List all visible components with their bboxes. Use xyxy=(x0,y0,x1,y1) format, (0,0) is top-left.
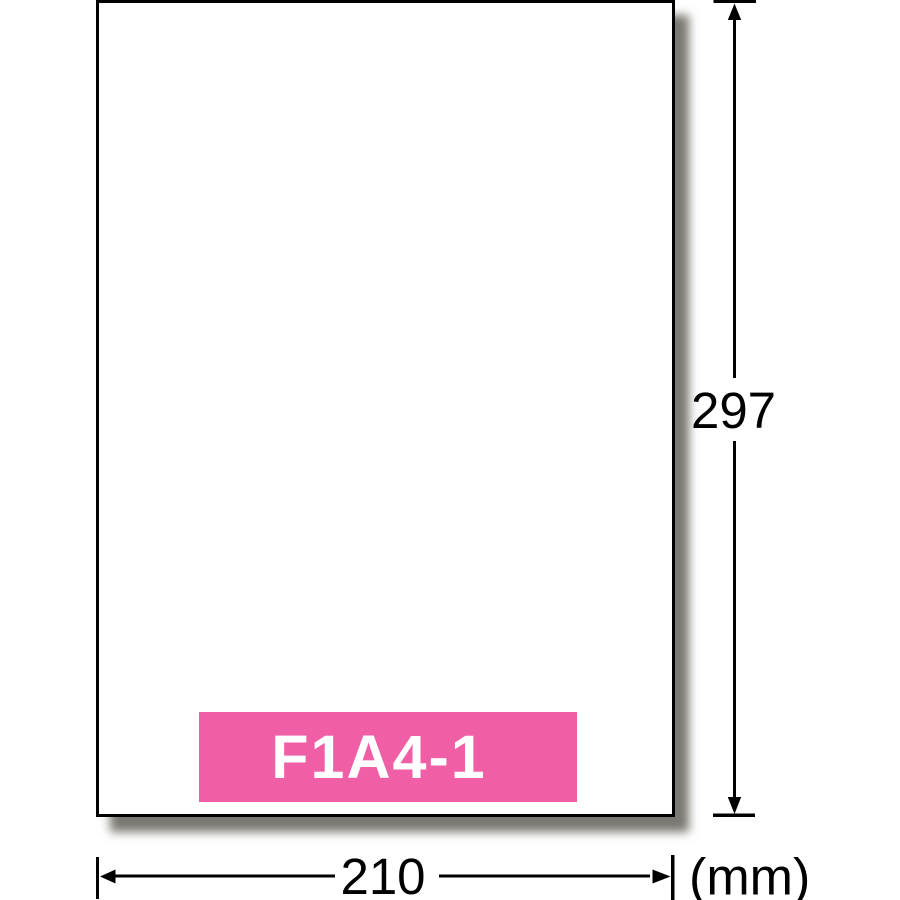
svg-text:210: 210 xyxy=(340,848,425,900)
svg-text:(mm): (mm) xyxy=(689,849,810,900)
svg-text:297: 297 xyxy=(691,382,776,439)
